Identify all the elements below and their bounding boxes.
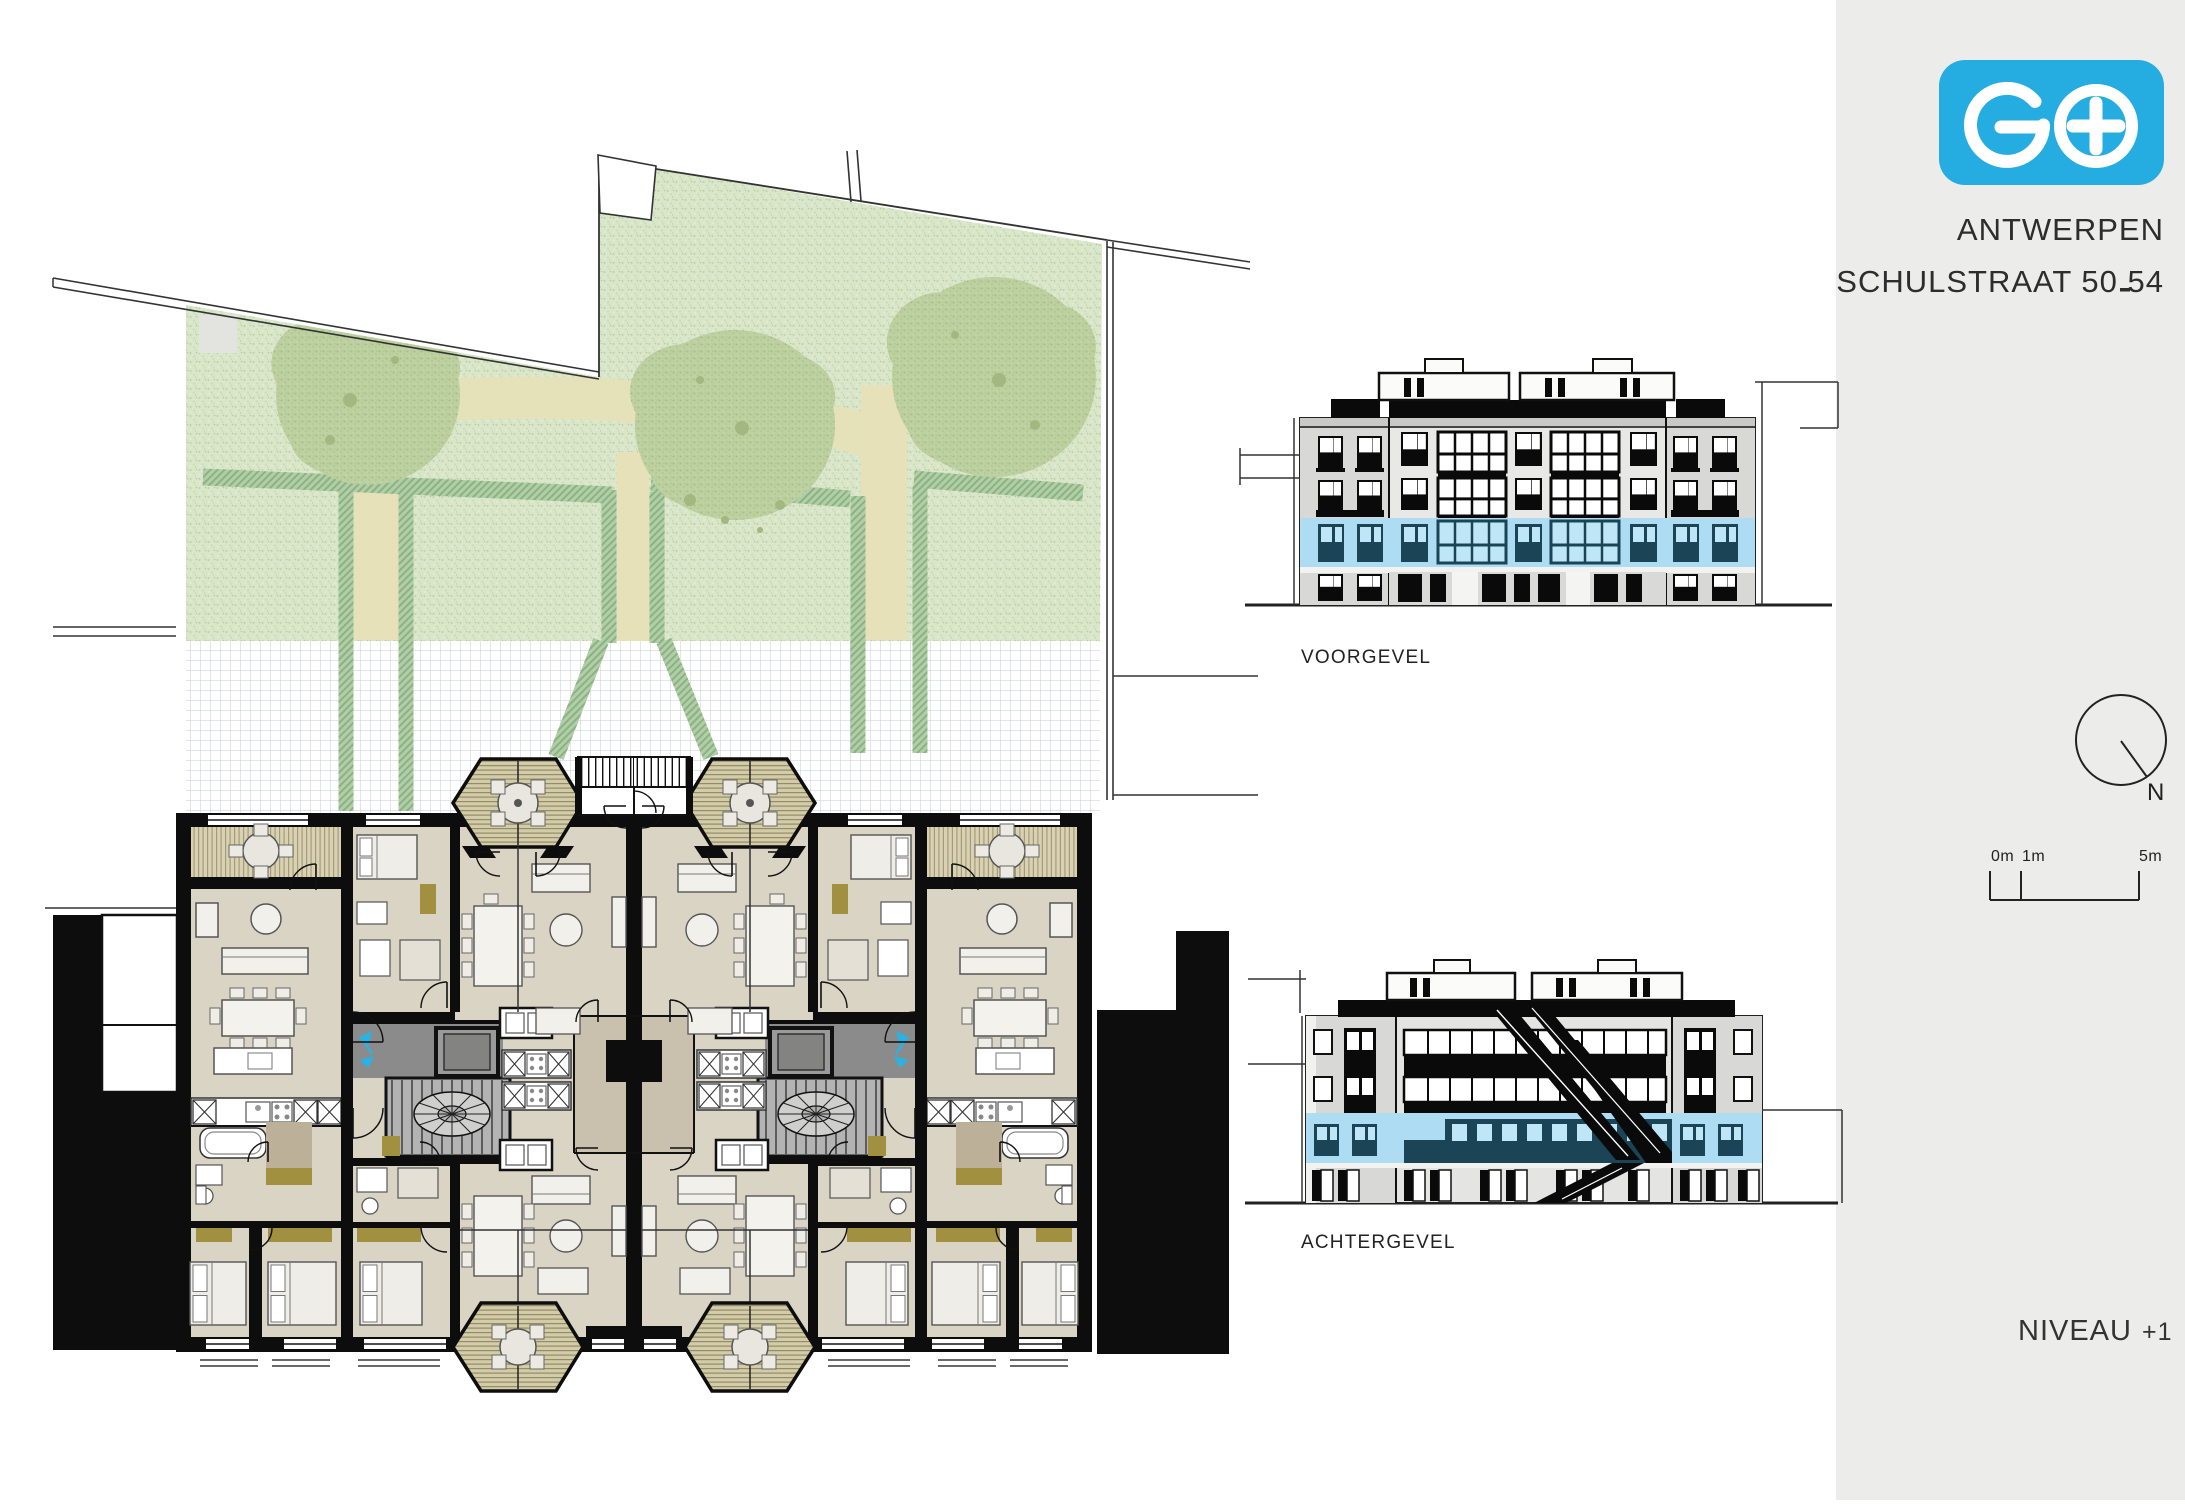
svg-text:ACHTERGEVEL: ACHTERGEVEL <box>1301 1232 1456 1253</box>
svg-text:NIVEAU: NIVEAU <box>2018 1315 2132 1347</box>
svg-text:N: N <box>2147 779 2165 806</box>
svg-text:VOORGEVEL: VOORGEVEL <box>1301 647 1431 668</box>
svg-text:SCHULSTRAAT 50 54: SCHULSTRAAT 50 54 <box>1836 264 2164 299</box>
svg-text:1m: 1m <box>2022 848 2045 865</box>
svg-text:ANTWERPEN: ANTWERPEN <box>1957 212 2164 247</box>
svg-text:+1: +1 <box>2142 1318 2173 1346</box>
svg-text:5m: 5m <box>2139 848 2162 865</box>
svg-text:0m: 0m <box>1991 848 2014 865</box>
